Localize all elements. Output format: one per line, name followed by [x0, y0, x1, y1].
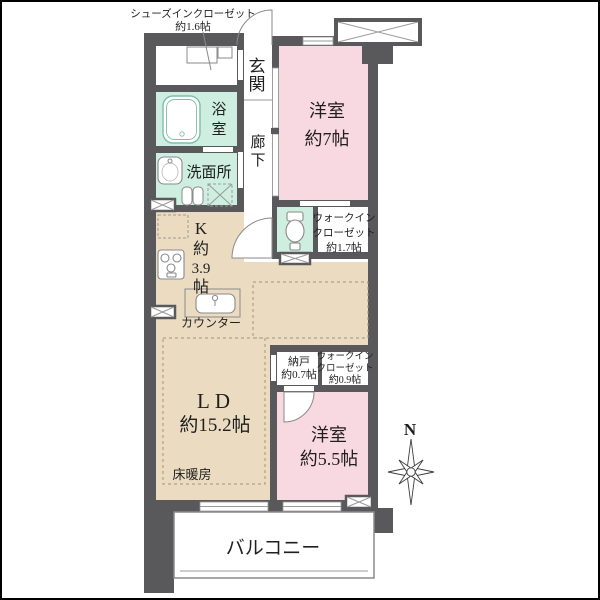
wall-toilet-left	[272, 207, 277, 259]
bedroom7-closet-door-gap	[300, 201, 350, 206]
wall-sic-bath	[156, 85, 240, 92]
wall-right	[368, 36, 378, 508]
shoe-closet-size: 約1.6帖	[175, 19, 211, 33]
svg-text:約7帖: 約7帖	[305, 129, 350, 149]
svg-text:約: 約	[193, 240, 209, 258]
svg-text:約0.9帖: 約0.9帖	[329, 373, 362, 386]
svg-text:関: 関	[249, 75, 266, 94]
sic-opening	[238, 50, 243, 80]
corridor-label: 廊	[250, 134, 265, 151]
wall-left-bottom-column	[144, 505, 174, 593]
shoe-closet-label: シューズインクローゼット	[130, 7, 255, 20]
dining-floor	[244, 262, 368, 345]
svg-text:下: 下	[250, 153, 265, 169]
svg-text:約5.5帖: 約5.5帖	[300, 449, 359, 469]
wic09-label: ウォークイン	[316, 351, 373, 362]
svg-text:クローゼット: クローゼット	[316, 362, 373, 374]
svg-text:室: 室	[211, 121, 226, 138]
wall-left	[144, 33, 156, 505]
washroom-label: 洗面所	[186, 164, 231, 181]
kitchen-label: K	[195, 219, 208, 238]
bathtub-fixture	[163, 96, 200, 143]
floor-plan-canvas: シューズインクローゼット 約1.6帖 玄 関 浴 室 廊 下 洗面所 K 約 3…	[0, 0, 600, 600]
wic17-label: ウォークイン	[313, 212, 376, 224]
svg-text:3.9: 3.9	[192, 261, 211, 277]
svg-text:約0.7帖: 約0.7帖	[281, 367, 317, 381]
wall-dining-bottom	[270, 345, 378, 352]
stove-fixture	[158, 250, 184, 279]
sic-shelf	[218, 47, 232, 58]
floor-heating-label: 床暖房	[172, 467, 211, 482]
svg-text:約15.2帖: 約15.2帖	[179, 414, 250, 436]
vent-left-upper	[150, 199, 175, 211]
svg-text:帖: 帖	[193, 278, 209, 296]
vent-bedroom55	[346, 496, 372, 508]
storage-door-gap	[271, 355, 276, 381]
bedroom7-sliding-door-panel	[273, 68, 279, 128]
compass-north-label: N	[404, 420, 417, 439]
duct-shaft-top	[336, 20, 420, 44]
counter-label: カウンター	[181, 316, 241, 330]
balcony-label: バルコニー	[226, 538, 321, 559]
bedroom-7-floor	[279, 46, 368, 200]
sic-shelf	[187, 47, 217, 63]
entrance-label: 玄	[249, 57, 266, 76]
ld-label: LD	[197, 389, 235, 413]
floor-plan-image: シューズインクローゼット 約1.6帖 玄 関 浴 室 廊 下 洗面所 K 約 3…	[0, 0, 600, 600]
bedroom55-label: 洋室	[311, 425, 347, 445]
bedroom55-door-gap	[284, 386, 314, 391]
vent-toilet	[280, 253, 310, 264]
bedroom7-sliding-door-panel	[273, 134, 279, 196]
vanity-sink-fixture	[158, 157, 182, 184]
vent-left-lower	[150, 306, 175, 318]
wall-top-left	[144, 33, 244, 46]
bath-label: 浴	[211, 101, 226, 118]
sliding-door-stile	[271, 128, 279, 134]
svg-text:約1.7帖: 約1.7帖	[326, 240, 362, 254]
washroom-door-gap	[238, 152, 243, 188]
svg-text:クローゼット: クローゼット	[313, 227, 376, 239]
storage-label: 納戸	[288, 355, 310, 368]
bedroom7-label: 洋室	[309, 101, 345, 121]
bath-door-gap	[203, 147, 233, 152]
